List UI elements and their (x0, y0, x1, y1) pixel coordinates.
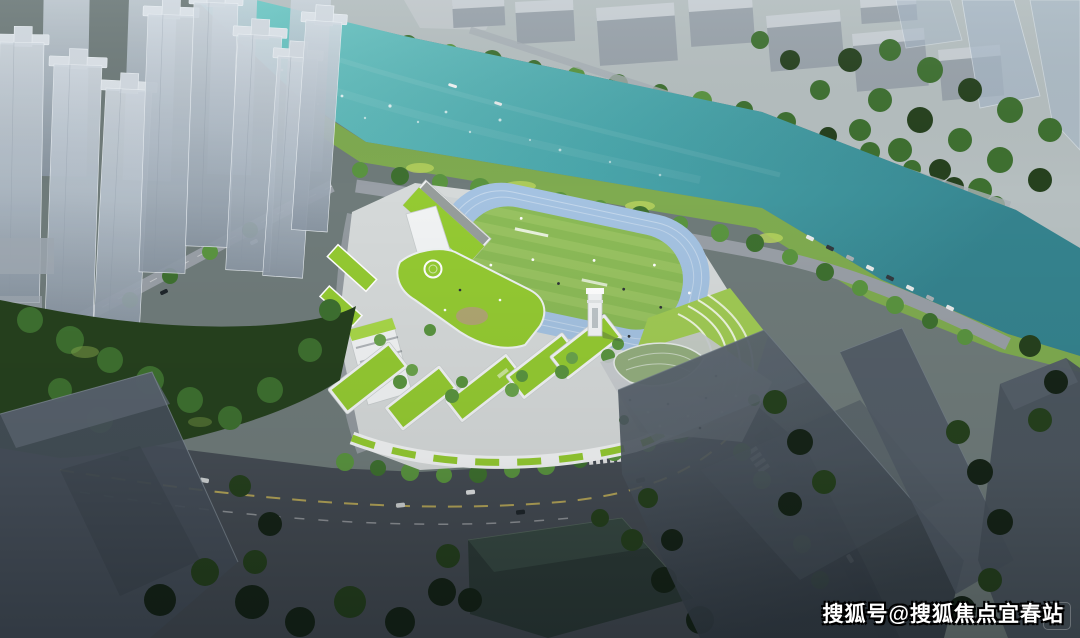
aerial-photo (0, 0, 1080, 638)
watermark-text: 搜狐号@搜狐焦点宜春站 (823, 603, 1064, 626)
residential-towers (0, 0, 356, 458)
watermark: 图 搜狐号@搜狐焦点宜春站 (823, 598, 1064, 628)
aerial-render-screenshot: 图 搜狐号@搜狐焦点宜春站 (0, 0, 1080, 638)
roof-courtyard (456, 307, 488, 325)
